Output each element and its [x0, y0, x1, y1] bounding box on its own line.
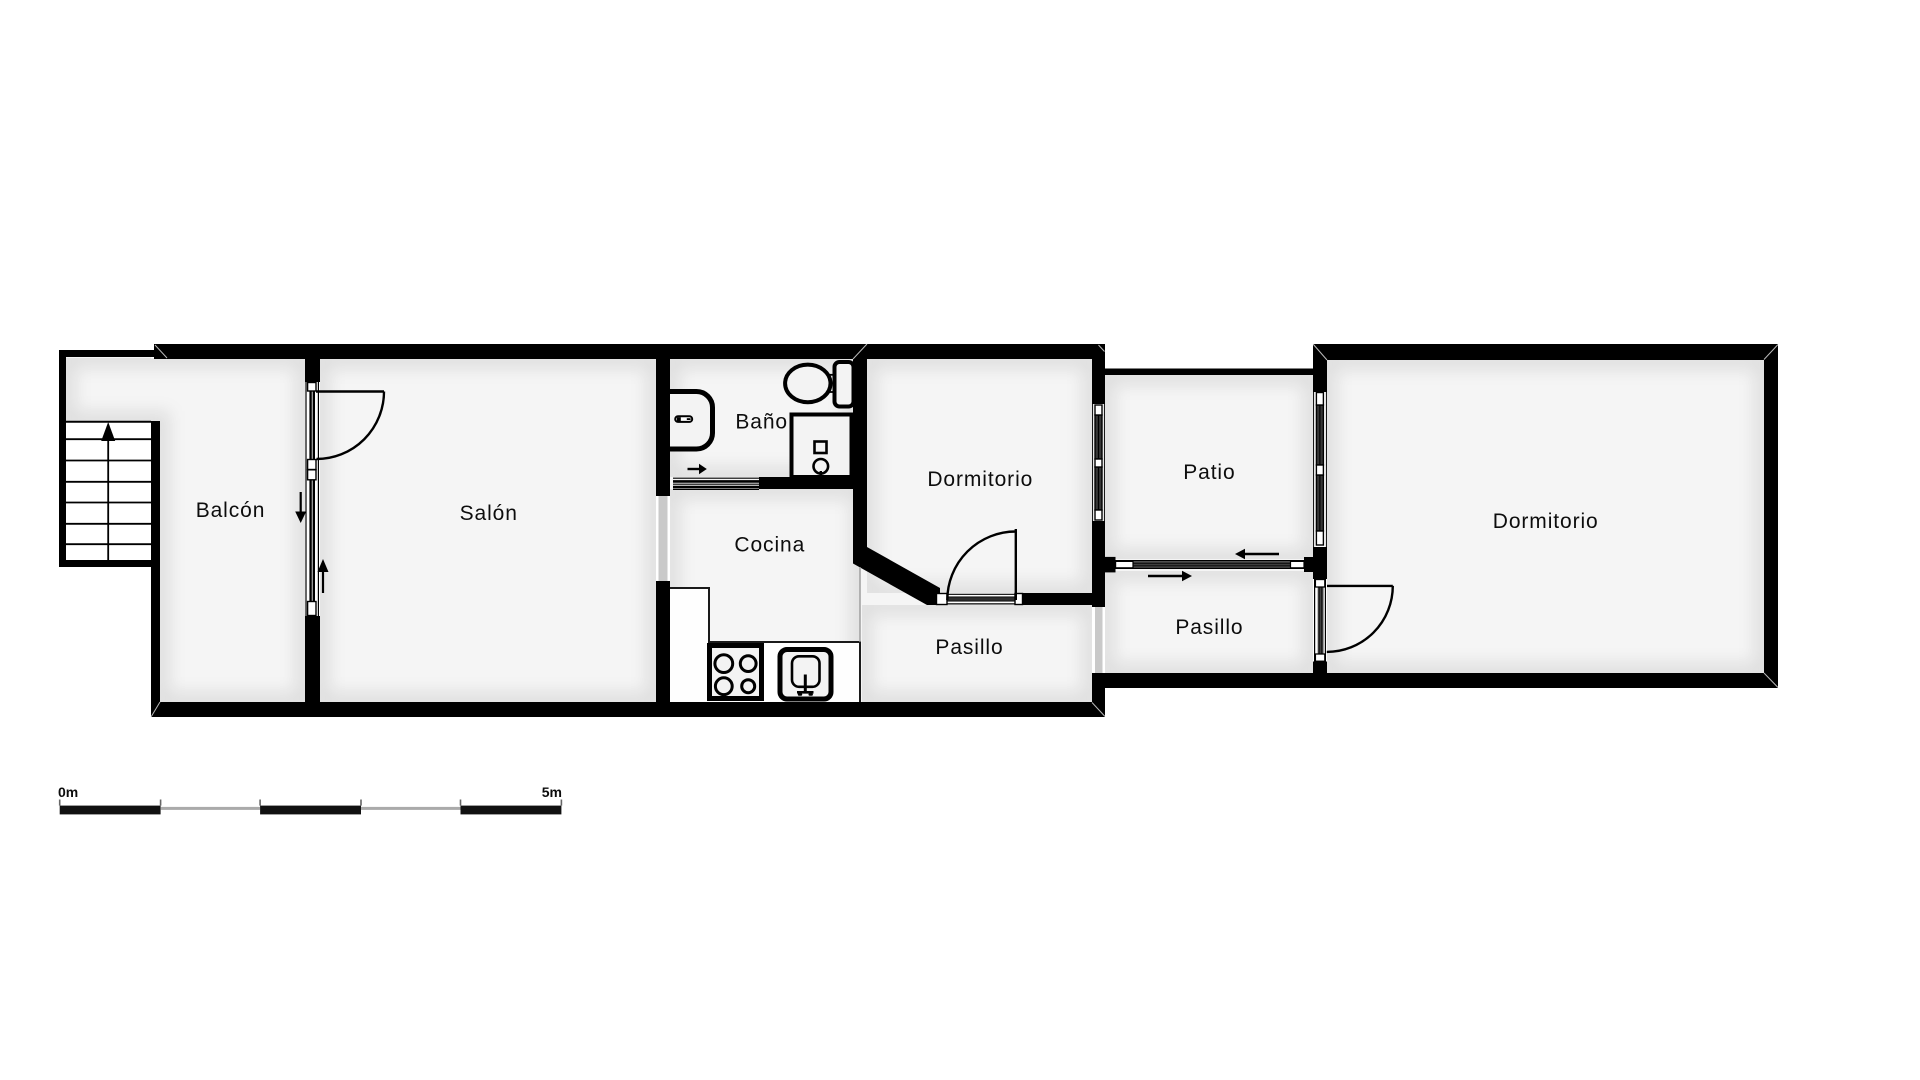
- svg-text:5m: 5m: [542, 784, 562, 800]
- svg-text:Salón: Salón: [460, 502, 518, 525]
- svg-text:Pasillo: Pasillo: [1175, 616, 1243, 639]
- svg-text:Balcón: Balcón: [196, 499, 266, 522]
- svg-text:Baño: Baño: [735, 411, 788, 434]
- svg-text:Pasillo: Pasillo: [935, 636, 1003, 659]
- svg-text:Dormitorio: Dormitorio: [1493, 510, 1599, 533]
- svg-text:Dormitorio: Dormitorio: [927, 468, 1033, 491]
- svg-text:Cocina: Cocina: [734, 533, 805, 556]
- svg-text:0m: 0m: [58, 784, 78, 800]
- svg-text:Patio: Patio: [1183, 461, 1235, 484]
